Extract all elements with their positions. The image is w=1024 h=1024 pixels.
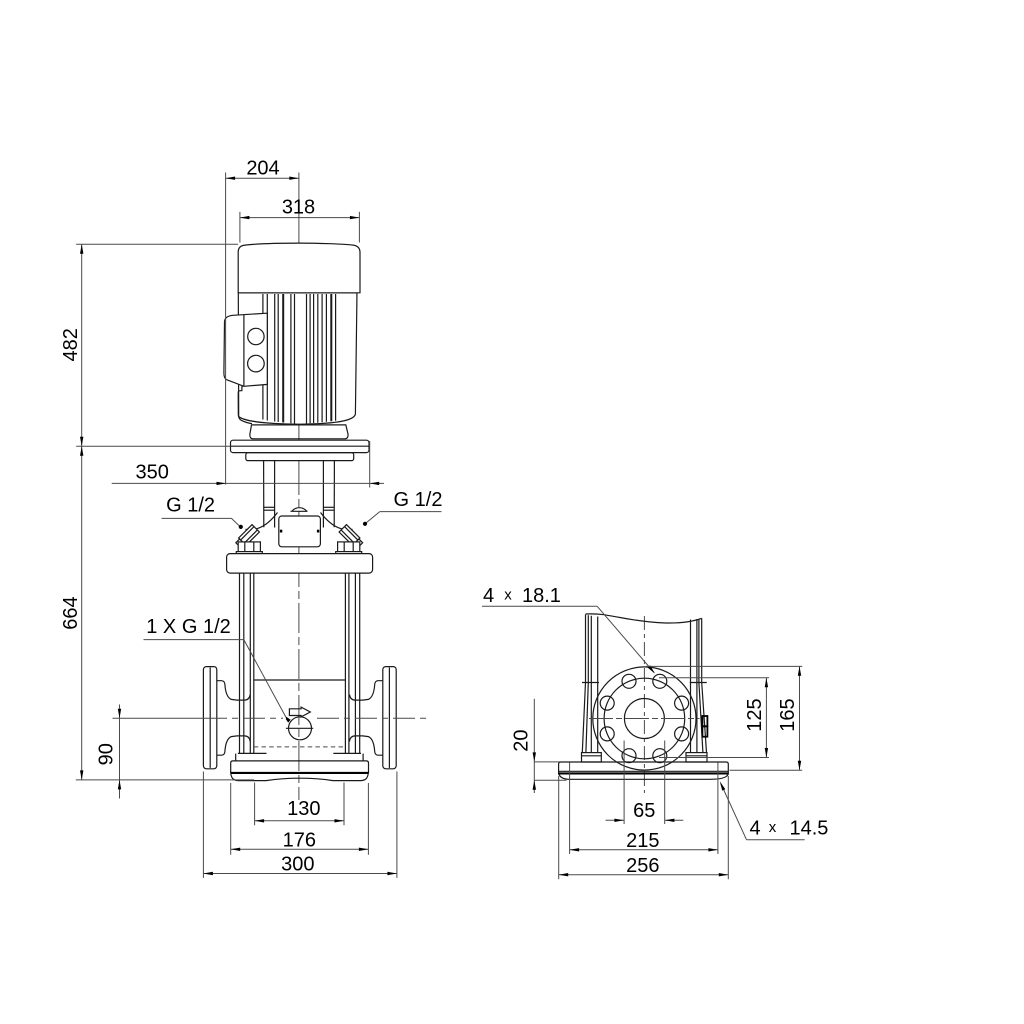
svg-text:4: 4 [750,817,761,839]
svg-text:350: 350 [136,462,169,484]
svg-text:G 1/2: G 1/2 [394,489,443,511]
svg-text:65: 65 [633,800,655,822]
svg-text:4: 4 [483,585,494,607]
svg-text:20: 20 [511,729,533,751]
svg-text:1 X G 1/2: 1 X G 1/2 [146,616,231,638]
svg-text:300: 300 [281,853,314,875]
svg-text:215: 215 [626,830,659,852]
svg-text:176: 176 [283,829,316,851]
svg-text:204: 204 [246,157,279,179]
svg-text:130: 130 [287,798,320,820]
svg-text:G 1/2: G 1/2 [166,495,215,517]
svg-text:18.1: 18.1 [522,585,561,607]
svg-text:90: 90 [96,743,118,765]
svg-text:256: 256 [626,855,659,877]
svg-text:14.5: 14.5 [790,817,829,839]
svg-text:664: 664 [60,596,82,629]
svg-text:x: x [504,586,512,603]
svg-text:482: 482 [60,328,82,361]
svg-text:318: 318 [282,197,315,219]
svg-text:x: x [769,819,777,836]
svg-text:125: 125 [744,698,766,731]
svg-text:165: 165 [777,698,799,731]
